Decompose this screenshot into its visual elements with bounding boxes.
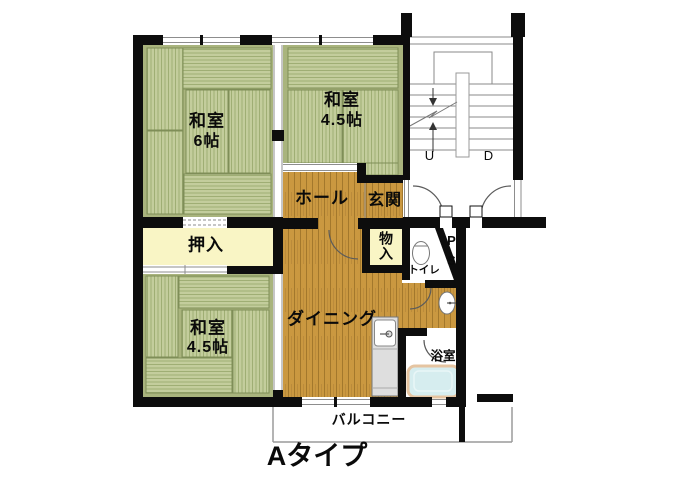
room-label-dining: ダイニング — [287, 311, 377, 330]
stairs-icon — [408, 37, 513, 157]
entrance-door-arc-right — [481, 186, 511, 216]
stairs-up-label: U — [425, 149, 435, 163]
stairs-down-label: D — [484, 149, 494, 163]
room-label-washitsu-6-size: 6帖 — [194, 133, 221, 151]
door-leafs — [440, 206, 482, 217]
room-label-hall: ホール — [295, 190, 349, 209]
room-label-balcony: バルコニー — [332, 412, 407, 427]
room-label-bathroom: 浴室 — [430, 350, 455, 364]
room-label-monoire: 物 入 — [379, 232, 393, 263]
room-label-washitsu-6-name: 和室 — [189, 113, 225, 132]
bathtub-icon — [408, 366, 459, 397]
room-label-washitsu-45-top-size: 4.5帖 — [321, 112, 363, 130]
room-label-toilet: トイレ — [408, 265, 440, 277]
floor-plan-graphics — [0, 0, 680, 480]
floor-plan: 和室 6帖 和室 4.5帖 ホール 玄関 押入 物 入 トイレ P S 和室 4… — [0, 0, 680, 480]
balcony-divider — [459, 407, 465, 442]
room-label-washitsu-45-bottom-size: 4.5帖 — [187, 339, 229, 357]
room-label-oshiire: 押入 — [188, 237, 224, 256]
ps-label-p: P — [447, 234, 457, 248]
room-label-washitsu-45-bottom-name: 和室 — [190, 320, 226, 339]
room-label-genkan: 玄関 — [368, 192, 402, 210]
ps-label-s: S — [447, 254, 457, 268]
plan-title: Aタイプ — [267, 442, 368, 472]
entrance-door-arc-left — [413, 186, 443, 216]
room-label-washitsu-45-top-name: 和室 — [324, 92, 360, 111]
toilet-icon — [413, 242, 430, 265]
